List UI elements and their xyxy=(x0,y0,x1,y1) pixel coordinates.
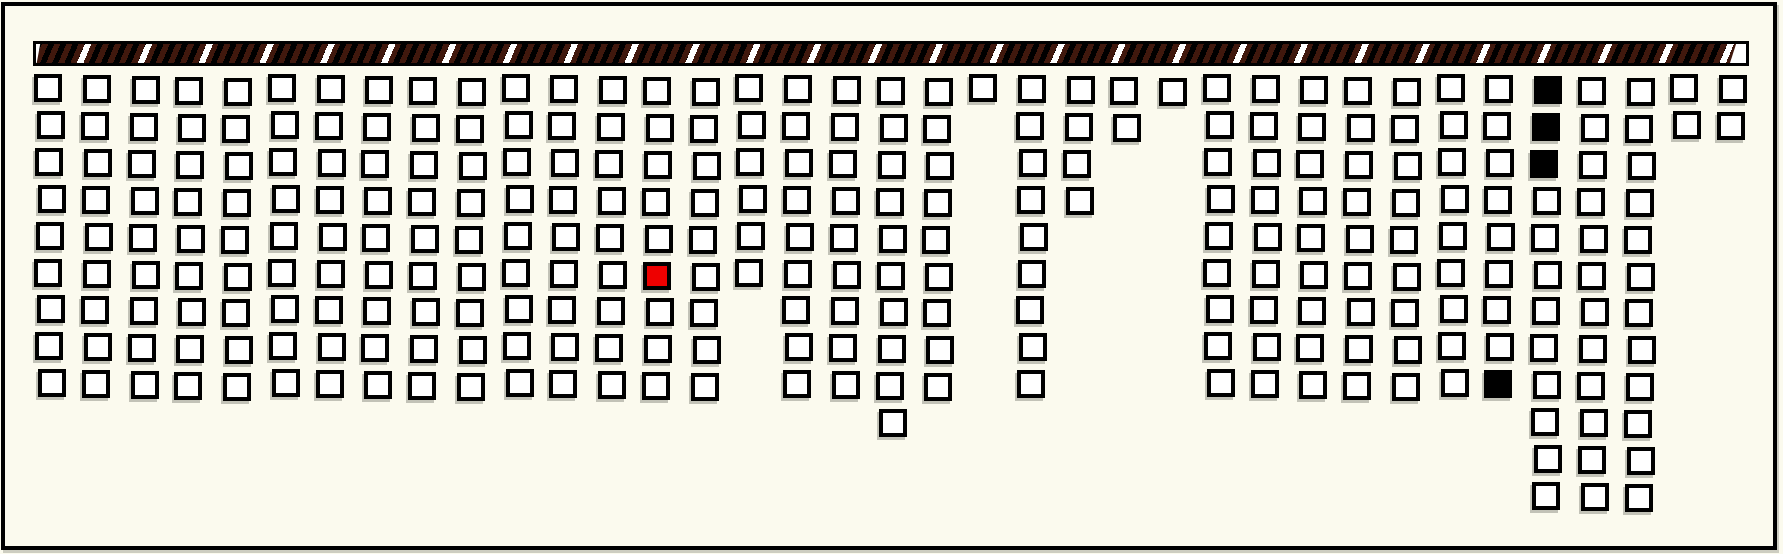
grid-cell-open[interactable] xyxy=(833,261,861,289)
grid-cell-open[interactable] xyxy=(1254,223,1282,251)
grid-cell-open[interactable] xyxy=(456,115,484,143)
grid-cell-open[interactable] xyxy=(597,113,625,141)
grid-cell-open[interactable] xyxy=(551,333,579,361)
grid-cell-open[interactable] xyxy=(174,188,202,216)
grid-cell-open[interactable] xyxy=(81,296,109,324)
grid-cell-filled-black[interactable] xyxy=(1534,76,1562,104)
grid-cell-open[interactable] xyxy=(1438,148,1466,176)
grid-cell-open[interactable] xyxy=(880,114,908,142)
grid-cell-open[interactable] xyxy=(130,297,158,325)
grid-cell-open[interactable] xyxy=(1203,259,1231,287)
grid-cell-open[interactable] xyxy=(1394,336,1422,364)
grid-cell-open[interactable] xyxy=(1624,226,1652,254)
grid-cell-open[interactable] xyxy=(878,151,906,179)
grid-cell-open[interactable] xyxy=(319,223,347,251)
grid-cell-filled-black[interactable] xyxy=(1530,150,1558,178)
grid-cell-open[interactable] xyxy=(1250,112,1278,140)
grid-cell-open[interactable] xyxy=(1347,114,1375,142)
grid-cell-open[interactable] xyxy=(35,148,63,176)
grid-cell-open[interactable] xyxy=(317,75,345,103)
grid-cell-open[interactable] xyxy=(642,188,670,216)
grid-cell-open[interactable] xyxy=(923,115,951,143)
grid-cell-open[interactable] xyxy=(1441,369,1469,397)
grid-cell-open[interactable] xyxy=(879,409,907,437)
grid-cell-open[interactable] xyxy=(84,333,112,361)
grid-cell-open[interactable] xyxy=(785,333,813,361)
grid-cell-open[interactable] xyxy=(457,189,485,217)
grid-cell-open[interactable] xyxy=(784,75,812,103)
grid-cell-open[interactable] xyxy=(225,152,253,180)
grid-cell-open[interactable] xyxy=(361,150,389,178)
grid-cell-open[interactable] xyxy=(1627,263,1655,291)
grid-cell-open[interactable] xyxy=(1205,222,1233,250)
grid-cell-open[interactable] xyxy=(832,371,860,399)
grid-cell-open[interactable] xyxy=(877,262,905,290)
grid-cell-open[interactable] xyxy=(412,114,440,142)
grid-cell-open[interactable] xyxy=(1532,482,1560,510)
grid-cell-open[interactable] xyxy=(829,150,857,178)
grid-cell-open[interactable] xyxy=(272,369,300,397)
grid-cell-open[interactable] xyxy=(1486,149,1514,177)
grid-cell-open[interactable] xyxy=(1296,150,1324,178)
grid-cell-open[interactable] xyxy=(224,78,252,106)
grid-cell-open[interactable] xyxy=(550,75,578,103)
grid-cell-open[interactable] xyxy=(408,372,436,400)
grid-cell-open[interactable] xyxy=(1437,74,1465,102)
grid-cell-open[interactable] xyxy=(1625,299,1653,327)
grid-cell-open[interactable] xyxy=(831,113,859,141)
grid-cell-open[interactable] xyxy=(37,111,65,139)
grid-cell-open[interactable] xyxy=(832,187,860,215)
grid-cell-open[interactable] xyxy=(1344,262,1372,290)
grid-cell-open[interactable] xyxy=(599,261,627,289)
grid-cell-open[interactable] xyxy=(735,259,763,287)
grid-cell-open[interactable] xyxy=(598,371,626,399)
grid-cell-open[interactable] xyxy=(269,332,297,360)
grid-cell-open[interactable] xyxy=(128,334,156,362)
grid-cell-open[interactable] xyxy=(176,151,204,179)
grid-cell-open[interactable] xyxy=(831,297,859,325)
grid-cell-open[interactable] xyxy=(1016,112,1044,140)
grid-cell-open[interactable] xyxy=(271,111,299,139)
grid-cell-open[interactable] xyxy=(922,226,950,254)
grid-cell-open[interactable] xyxy=(1483,296,1511,324)
grid-cell-open[interactable] xyxy=(38,185,66,213)
grid-cell-open[interactable] xyxy=(926,336,954,364)
grid-cell-open[interactable] xyxy=(551,149,579,177)
grid-cell-open[interactable] xyxy=(690,115,718,143)
grid-cell-open[interactable] xyxy=(1719,75,1747,103)
grid-cell-open[interactable] xyxy=(1530,334,1558,362)
grid-cell-open[interactable] xyxy=(318,149,346,177)
grid-cell-open[interactable] xyxy=(595,334,623,362)
grid-cell-open[interactable] xyxy=(1625,115,1653,143)
grid-cell-open[interactable] xyxy=(1437,259,1465,287)
grid-cell-open[interactable] xyxy=(364,187,392,215)
grid-cell-open[interactable] xyxy=(130,113,158,141)
grid-cell-open[interactable] xyxy=(1393,78,1421,106)
grid-cell-open[interactable] xyxy=(459,336,487,364)
grid-cell-open[interactable] xyxy=(1343,372,1371,400)
grid-cell-open[interactable] xyxy=(1343,188,1371,216)
grid-cell-open[interactable] xyxy=(459,152,487,180)
grid-cell-open[interactable] xyxy=(456,299,484,327)
grid-cell-open[interactable] xyxy=(878,335,906,363)
grid-cell-open[interactable] xyxy=(1392,189,1420,217)
grid-cell-open[interactable] xyxy=(784,260,812,288)
grid-cell-open[interactable] xyxy=(786,223,814,251)
grid-cell-open[interactable] xyxy=(693,152,721,180)
grid-cell-open[interactable] xyxy=(1626,189,1654,217)
grid-cell-open[interactable] xyxy=(177,225,205,253)
grid-cell-open[interactable] xyxy=(1250,296,1278,324)
grid-cell-open[interactable] xyxy=(221,226,249,254)
grid-cell-open[interactable] xyxy=(1203,74,1231,102)
grid-cell-open[interactable] xyxy=(599,76,627,104)
grid-cell-open[interactable] xyxy=(1578,262,1606,290)
grid-cell-open[interactable] xyxy=(1347,298,1375,326)
grid-cell-open[interactable] xyxy=(1206,295,1234,323)
grid-cell-open[interactable] xyxy=(739,185,767,213)
grid-cell-open[interactable] xyxy=(1624,410,1652,438)
grid-cell-open[interactable] xyxy=(1252,260,1280,288)
grid-cell-open[interactable] xyxy=(1392,373,1420,401)
grid-cell-open[interactable] xyxy=(505,295,533,323)
grid-cell-open[interactable] xyxy=(1670,74,1698,102)
grid-cell-open[interactable] xyxy=(1207,369,1235,397)
grid-cell-open[interactable] xyxy=(690,299,718,327)
grid-cell-open[interactable] xyxy=(408,188,436,216)
grid-cell-open[interactable] xyxy=(1580,409,1608,437)
grid-cell-open[interactable] xyxy=(506,185,534,213)
grid-cell-open[interactable] xyxy=(1019,149,1047,177)
grid-cell-open[interactable] xyxy=(1018,260,1046,288)
grid-cell-open[interactable] xyxy=(876,372,904,400)
grid-cell-open[interactable] xyxy=(689,226,717,254)
grid-cell-open[interactable] xyxy=(782,296,810,324)
grid-cell-filled-black[interactable] xyxy=(1484,370,1512,398)
grid-cell-open[interactable] xyxy=(1251,186,1279,214)
grid-cell-open[interactable] xyxy=(1393,263,1421,291)
grid-cell-open[interactable] xyxy=(1251,370,1279,398)
grid-cell-open[interactable] xyxy=(1579,335,1607,363)
grid-cell-open[interactable] xyxy=(1300,261,1328,289)
grid-cell-open[interactable] xyxy=(128,150,156,178)
grid-cell-open[interactable] xyxy=(598,187,626,215)
grid-cell-open[interactable] xyxy=(1580,225,1608,253)
grid-cell-open[interactable] xyxy=(455,226,483,254)
grid-cell-open[interactable] xyxy=(410,335,438,363)
grid-cell-open[interactable] xyxy=(1533,371,1561,399)
grid-cell-open[interactable] xyxy=(175,262,203,290)
grid-cell-open[interactable] xyxy=(1531,408,1559,436)
grid-cell-open[interactable] xyxy=(365,76,393,104)
grid-cell-open[interactable] xyxy=(1253,149,1281,177)
grid-cell-open[interactable] xyxy=(644,335,672,363)
grid-cell-open[interactable] xyxy=(1531,224,1559,252)
grid-cell-open[interactable] xyxy=(458,78,486,106)
grid-cell-open[interactable] xyxy=(1534,261,1562,289)
grid-cell-open[interactable] xyxy=(1391,115,1419,143)
grid-cell-open[interactable] xyxy=(548,296,576,324)
grid-cell-open[interactable] xyxy=(549,186,577,214)
grid-cell-open[interactable] xyxy=(1628,336,1656,364)
grid-cell-open[interactable] xyxy=(316,370,344,398)
grid-cell-open[interactable] xyxy=(1298,297,1326,325)
grid-cell-open[interactable] xyxy=(410,151,438,179)
grid-cell-open[interactable] xyxy=(34,259,62,287)
grid-cell-open[interactable] xyxy=(268,259,296,287)
grid-cell-open[interactable] xyxy=(129,224,157,252)
grid-cell-open[interactable] xyxy=(1485,75,1513,103)
grid-cell-open[interactable] xyxy=(132,76,160,104)
grid-cell-open[interactable] xyxy=(1344,77,1372,105)
grid-cell-open[interactable] xyxy=(1532,297,1560,325)
grid-cell-open[interactable] xyxy=(38,369,66,397)
grid-cell-open[interactable] xyxy=(1485,260,1513,288)
grid-cell-open[interactable] xyxy=(1577,188,1605,216)
grid-cell-open[interactable] xyxy=(1626,373,1654,401)
grid-cell-open[interactable] xyxy=(1673,111,1701,139)
grid-cell-open[interactable] xyxy=(597,297,625,325)
grid-cell-open[interactable] xyxy=(693,336,721,364)
grid-cell-open[interactable] xyxy=(502,74,530,102)
grid-cell-open[interactable] xyxy=(362,224,390,252)
grid-cell-open[interactable] xyxy=(692,78,720,106)
grid-cell-open[interactable] xyxy=(178,114,206,142)
grid-cell-open[interactable] xyxy=(1159,78,1187,106)
grid-cell-open[interactable] xyxy=(925,78,953,106)
grid-cell-open[interactable] xyxy=(879,225,907,253)
grid-cell-open[interactable] xyxy=(926,152,954,180)
grid-cell-open[interactable] xyxy=(1440,295,1468,323)
grid-cell-open[interactable] xyxy=(1110,77,1138,105)
grid-cell-open[interactable] xyxy=(1533,187,1561,215)
grid-cell-open[interactable] xyxy=(363,113,391,141)
grid-cell-open[interactable] xyxy=(1298,113,1326,141)
grid-cell-open[interactable] xyxy=(1299,187,1327,215)
grid-cell-open[interactable] xyxy=(1207,185,1235,213)
grid-cell-open[interactable] xyxy=(691,373,719,401)
grid-cell-open[interactable] xyxy=(552,223,580,251)
grid-cell-open[interactable] xyxy=(783,186,811,214)
grid-cell-open[interactable] xyxy=(409,262,437,290)
grid-cell-open[interactable] xyxy=(223,373,251,401)
grid-cell-open[interactable] xyxy=(548,112,576,140)
grid-cell-open[interactable] xyxy=(458,263,486,291)
grid-cell-open[interactable] xyxy=(132,261,160,289)
grid-cell-open[interactable] xyxy=(876,188,904,216)
grid-cell-open[interactable] xyxy=(83,75,111,103)
grid-cell-open[interactable] xyxy=(1717,112,1745,140)
grid-cell-open[interactable] xyxy=(691,189,719,217)
grid-cell-open[interactable] xyxy=(1441,185,1469,213)
grid-cell-open[interactable] xyxy=(692,263,720,291)
grid-cell-open[interactable] xyxy=(364,371,392,399)
grid-cell-open[interactable] xyxy=(1627,78,1655,106)
grid-cell-open[interactable] xyxy=(877,77,905,105)
grid-cell-open[interactable] xyxy=(272,185,300,213)
grid-cell-open[interactable] xyxy=(1627,447,1655,475)
cell-grid xyxy=(0,0,1783,554)
grid-cell-open[interactable] xyxy=(81,112,109,140)
grid-cell-open[interactable] xyxy=(131,187,159,215)
grid-cell-open[interactable] xyxy=(83,260,111,288)
grid-cell-open[interactable] xyxy=(1252,75,1280,103)
grid-cell-open[interactable] xyxy=(646,298,674,326)
grid-cell-open[interactable] xyxy=(880,298,908,326)
grid-cell-open[interactable] xyxy=(1578,446,1606,474)
grid-cell-open[interactable] xyxy=(1113,114,1141,142)
grid-cell-open[interactable] xyxy=(1439,222,1467,250)
grid-cell-open[interactable] xyxy=(318,333,346,361)
grid-cell-open[interactable] xyxy=(645,225,673,253)
grid-cell-open[interactable] xyxy=(1581,298,1609,326)
grid-cell-open[interactable] xyxy=(178,298,206,326)
grid-cell-open[interactable] xyxy=(85,223,113,251)
grid-cell-open[interactable] xyxy=(1483,112,1511,140)
grid-cell-open[interactable] xyxy=(222,115,250,143)
grid-cell-filled-black[interactable] xyxy=(1532,113,1560,141)
grid-cell-open[interactable] xyxy=(505,111,533,139)
grid-cell-open[interactable] xyxy=(176,335,204,363)
grid-cell-open[interactable] xyxy=(782,112,810,140)
grid-cell-open[interactable] xyxy=(1016,296,1044,324)
grid-cell-open[interactable] xyxy=(925,263,953,291)
grid-cell-open[interactable] xyxy=(646,114,674,142)
grid-cell-open[interactable] xyxy=(222,299,250,327)
grid-cell-open[interactable] xyxy=(737,222,765,250)
grid-cell-open[interactable] xyxy=(1296,334,1324,362)
grid-cell-open[interactable] xyxy=(271,295,299,323)
grid-cell-open[interactable] xyxy=(268,74,296,102)
grid-cell-open[interactable] xyxy=(1204,332,1232,360)
grid-cell-open[interactable] xyxy=(225,336,253,364)
grid-cell-open[interactable] xyxy=(175,77,203,105)
grid-cell-open[interactable] xyxy=(1299,371,1327,399)
grid-cell-open[interactable] xyxy=(224,263,252,291)
grid-cell-open[interactable] xyxy=(1020,223,1048,251)
grid-cell-filled-red[interactable] xyxy=(643,262,671,290)
grid-cell-open[interactable] xyxy=(644,151,672,179)
grid-cell-open[interactable] xyxy=(1581,114,1609,142)
grid-cell-open[interactable] xyxy=(82,186,110,214)
grid-cell-open[interactable] xyxy=(34,74,62,102)
grid-cell-open[interactable] xyxy=(1346,225,1374,253)
grid-cell-open[interactable] xyxy=(1577,372,1605,400)
grid-cell-open[interactable] xyxy=(1065,113,1093,141)
grid-cell-open[interactable] xyxy=(316,186,344,214)
grid-cell-open[interactable] xyxy=(1063,150,1091,178)
grid-cell-open[interactable] xyxy=(315,112,343,140)
grid-cell-open[interactable] xyxy=(830,224,858,252)
grid-cell-open[interactable] xyxy=(82,370,110,398)
grid-cell-open[interactable] xyxy=(1438,332,1466,360)
grid-cell-open[interactable] xyxy=(506,369,534,397)
grid-cell-open[interactable] xyxy=(223,189,251,217)
grid-cell-open[interactable] xyxy=(1066,187,1094,215)
grid-cell-open[interactable] xyxy=(1484,186,1512,214)
grid-cell-open[interactable] xyxy=(411,225,439,253)
grid-cell-open[interactable] xyxy=(1019,333,1047,361)
grid-cell-open[interactable] xyxy=(738,111,766,139)
grid-cell-open[interactable] xyxy=(1297,224,1325,252)
grid-cell-open[interactable] xyxy=(317,260,345,288)
grid-cell-open[interactable] xyxy=(924,189,952,217)
grid-cell-open[interactable] xyxy=(1486,333,1514,361)
grid-cell-open[interactable] xyxy=(1625,484,1653,512)
grid-cell-open[interactable] xyxy=(924,373,952,401)
grid-cell-open[interactable] xyxy=(642,372,670,400)
grid-cell-open[interactable] xyxy=(1345,151,1373,179)
grid-cell-open[interactable] xyxy=(365,261,393,289)
grid-cell-open[interactable] xyxy=(1579,151,1607,179)
grid-cell-open[interactable] xyxy=(503,148,531,176)
grid-cell-open[interactable] xyxy=(735,74,763,102)
grid-cell-open[interactable] xyxy=(1017,370,1045,398)
grid-cell-open[interactable] xyxy=(595,150,623,178)
grid-cell-open[interactable] xyxy=(504,222,532,250)
grid-cell-open[interactable] xyxy=(361,334,389,362)
grid-cell-open[interactable] xyxy=(502,259,530,287)
grid-cell-open[interactable] xyxy=(1391,299,1419,327)
grid-cell-open[interactable] xyxy=(1487,223,1515,251)
grid-cell-open[interactable] xyxy=(1300,76,1328,104)
grid-cell-open[interactable] xyxy=(1581,483,1609,511)
grid-cell-open[interactable] xyxy=(174,372,202,400)
grid-cell-open[interactable] xyxy=(1440,111,1468,139)
grid-cell-open[interactable] xyxy=(969,74,997,102)
grid-cell-open[interactable] xyxy=(1345,335,1373,363)
grid-cell-open[interactable] xyxy=(35,332,63,360)
grid-cell-open[interactable] xyxy=(736,148,764,176)
grid-cell-open[interactable] xyxy=(1390,226,1418,254)
grid-cell-open[interactable] xyxy=(549,370,577,398)
grid-cell-open[interactable] xyxy=(785,149,813,177)
grid-cell-open[interactable] xyxy=(783,370,811,398)
grid-cell-open[interactable] xyxy=(1253,333,1281,361)
grid-cell-open[interactable] xyxy=(457,373,485,401)
grid-cell-open[interactable] xyxy=(363,297,391,325)
grid-cell-open[interactable] xyxy=(270,222,298,250)
grid-cell-open[interactable] xyxy=(1017,186,1045,214)
grid-cell-open[interactable] xyxy=(596,224,624,252)
grid-cell-open[interactable] xyxy=(409,77,437,105)
grid-cell-open[interactable] xyxy=(1206,111,1234,139)
grid-cell-open[interactable] xyxy=(1204,148,1232,176)
grid-cell-open[interactable] xyxy=(1628,152,1656,180)
grid-cell-open[interactable] xyxy=(1067,76,1095,104)
grid-cell-open[interactable] xyxy=(1018,75,1046,103)
grid-cell-open[interactable] xyxy=(269,148,297,176)
grid-cell-open[interactable] xyxy=(37,295,65,323)
grid-cell-open[interactable] xyxy=(1578,77,1606,105)
grid-cell-open[interactable] xyxy=(1394,152,1422,180)
grid-cell-open[interactable] xyxy=(315,296,343,324)
grid-cell-open[interactable] xyxy=(833,76,861,104)
grid-cell-open[interactable] xyxy=(36,222,64,250)
grid-cell-open[interactable] xyxy=(829,334,857,362)
grid-cell-open[interactable] xyxy=(550,260,578,288)
grid-cell-open[interactable] xyxy=(503,332,531,360)
grid-cell-open[interactable] xyxy=(643,77,671,105)
grid-cell-open[interactable] xyxy=(84,149,112,177)
grid-cell-open[interactable] xyxy=(412,298,440,326)
grid-cell-open[interactable] xyxy=(923,299,951,327)
grid-cell-open[interactable] xyxy=(1534,445,1562,473)
grid-cell-open[interactable] xyxy=(131,371,159,399)
